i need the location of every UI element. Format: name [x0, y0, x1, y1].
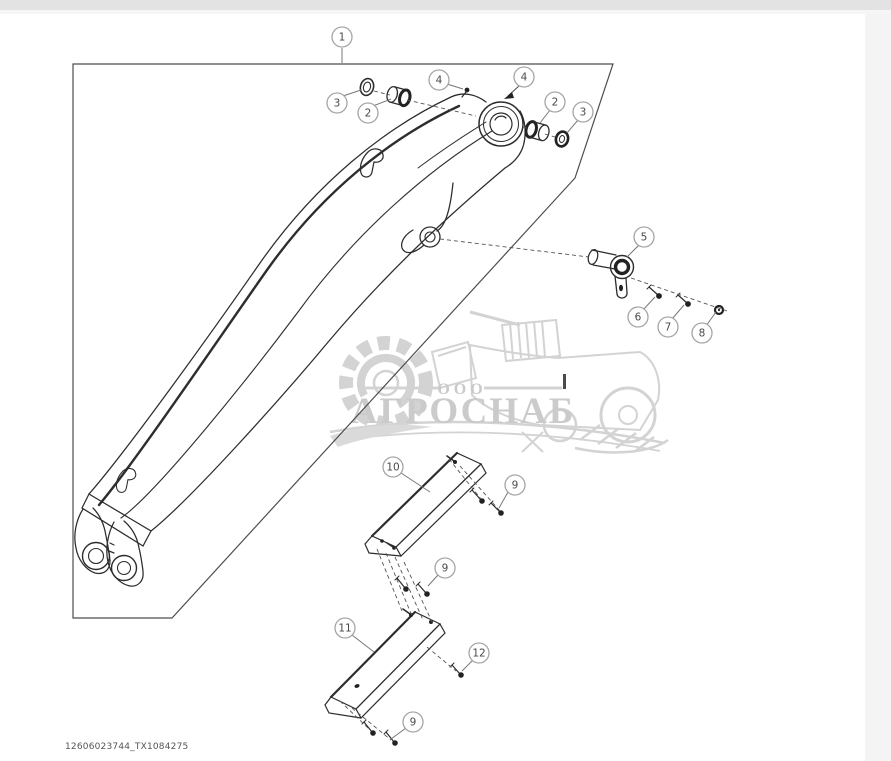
- callout-1[interactable]: 1: [332, 27, 352, 47]
- svg-text:1: 1: [339, 32, 346, 44]
- svg-text:12: 12: [472, 648, 485, 660]
- callout-7[interactable]: 7: [658, 317, 678, 337]
- svg-text:9: 9: [512, 480, 519, 492]
- svg-text:4: 4: [521, 72, 528, 84]
- svg-text:3: 3: [580, 107, 587, 119]
- callout-2-right[interactable]: 2: [545, 92, 565, 112]
- callout-5[interactable]: 5: [634, 227, 654, 247]
- callout-11[interactable]: 11: [335, 618, 355, 638]
- callout-3-right[interactable]: 3: [573, 102, 593, 122]
- svg-text:11: 11: [338, 623, 351, 635]
- callout-4-left[interactable]: 4: [429, 70, 449, 90]
- callout-10[interactable]: 10: [383, 457, 403, 477]
- top-edge-strip: [0, 0, 891, 10]
- svg-text:10: 10: [386, 462, 399, 474]
- parts-diagram-canvas: ООО АГРОСНАБ: [0, 0, 891, 761]
- callout-9-lower[interactable]: 9: [403, 712, 423, 732]
- svg-text:4: 4: [436, 75, 443, 87]
- top-edge-shadow: [0, 10, 891, 14]
- svg-text:3: 3: [334, 98, 341, 110]
- svg-text:8: 8: [699, 328, 706, 340]
- watermark-artifact-bar: [563, 374, 566, 389]
- svg-text:5: 5: [641, 232, 648, 244]
- callout-8[interactable]: 8: [692, 323, 712, 343]
- callout-12[interactable]: 12: [469, 643, 489, 663]
- parts-catalog-page: ООО АГРОСНАБ: [0, 0, 891, 761]
- svg-text:9: 9: [410, 717, 417, 729]
- callout-4-right[interactable]: 4: [514, 67, 534, 87]
- callout-6[interactable]: 6: [628, 307, 648, 327]
- svg-text:6: 6: [635, 312, 642, 324]
- right-margin-bar: [865, 0, 891, 761]
- callout-3-left[interactable]: 3: [327, 93, 347, 113]
- callout-9-middle[interactable]: 9: [435, 558, 455, 578]
- drawing-number: 12606023744_TX1084275: [65, 742, 188, 752]
- svg-text:2: 2: [552, 97, 559, 109]
- svg-text:7: 7: [665, 322, 672, 334]
- callout-2-left[interactable]: 2: [358, 103, 378, 123]
- watermark-brand-text: АГРОСНАБ: [351, 391, 576, 432]
- callout-9-upper[interactable]: 9: [505, 475, 525, 495]
- svg-text:2: 2: [365, 108, 372, 120]
- svg-text:9: 9: [442, 563, 449, 575]
